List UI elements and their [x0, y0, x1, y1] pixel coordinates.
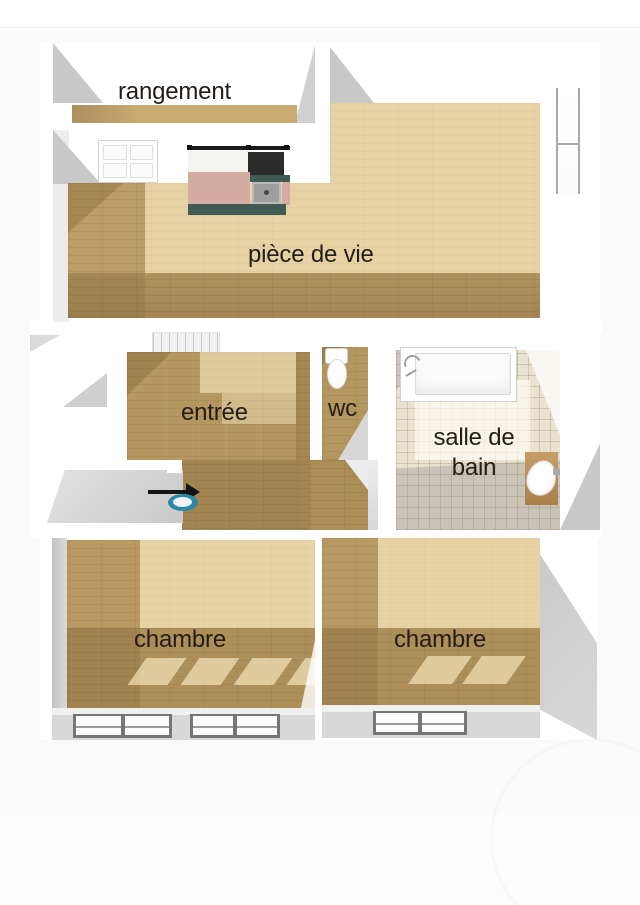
counter-top: [188, 172, 250, 205]
room-label-rangement: rangement: [118, 78, 231, 106]
kitchen-sink-icon: [252, 182, 281, 204]
wall-gap: [315, 43, 330, 131]
bathtub-basin: [415, 353, 511, 395]
door-panel: [130, 163, 154, 178]
floor-shadow: [296, 352, 310, 460]
floor-plan-page: rangement pièce de vie entrée wc salle d…: [0, 0, 640, 905]
worktop: [188, 151, 250, 172]
double-door-icon: [98, 140, 158, 183]
window-pane: [76, 716, 121, 735]
window-pane: [376, 713, 418, 732]
wall-face: [52, 538, 67, 708]
living-room-floor: [330, 103, 540, 318]
wall-shadow: [63, 373, 107, 407]
floor-light-patch: [140, 540, 315, 628]
kitchen-counter-icon: [187, 144, 290, 215]
wall-face: [560, 350, 600, 530]
sink-drain: [264, 190, 269, 195]
wall-shadow: [295, 45, 315, 123]
room-label-entree: entrée: [181, 399, 248, 427]
cabinet-edge: [248, 175, 290, 182]
door-panel: [130, 145, 154, 160]
counter-top-edge: [282, 182, 290, 205]
wall-shadow: [560, 350, 600, 530]
basin-bowl: [173, 497, 192, 507]
rail-knob: [187, 145, 192, 150]
rail-knob: [246, 145, 251, 150]
wall-face: [540, 538, 597, 740]
window-pane: [125, 716, 170, 735]
room-label-salle-de-bain: salle de bain: [420, 423, 528, 483]
room-label-wc: wc: [328, 395, 357, 423]
window-icon: [190, 714, 280, 738]
bathtub-icon: [400, 347, 517, 402]
room-label-chambre-gauche: chambre: [134, 626, 226, 654]
room-piece-de-vie-upper: [330, 43, 600, 322]
bedroom-floor: [322, 538, 540, 705]
door-panel: [103, 163, 127, 178]
window-icon: [556, 88, 580, 194]
window-icon: [373, 711, 467, 735]
rangement-floor: [72, 105, 297, 123]
entry-washbasin-icon: [168, 494, 198, 511]
exterior-wall: [322, 705, 540, 738]
wall-gap: [30, 530, 602, 538]
wall-shadow: [30, 335, 60, 352]
window-pane: [422, 713, 464, 732]
wall-shadow: [540, 538, 597, 740]
counter-rail: [187, 146, 290, 150]
vanity-icon: [525, 452, 558, 505]
rail-knob: [284, 145, 289, 150]
basin-faucet-icon: [553, 468, 560, 475]
floor-light-patch: [378, 538, 540, 628]
floor-shadow: [330, 273, 540, 318]
staircase-icon: [152, 332, 220, 354]
window-pane: [193, 716, 233, 735]
cabinet-front: [188, 204, 286, 215]
window-pane: [237, 716, 277, 735]
hallway-floor: [310, 460, 368, 530]
wall-face: [378, 332, 388, 530]
bedroom-floor: [67, 540, 315, 708]
wall-shadow: [53, 130, 101, 184]
window-icon: [73, 714, 172, 738]
toilet-bowl: [327, 359, 347, 389]
stove-icon: [248, 152, 284, 177]
wall-stub: [167, 460, 182, 473]
wall-highlight: [526, 350, 560, 435]
floor-shadow: [68, 273, 330, 318]
room-label-chambre-droite: chambre: [394, 626, 486, 654]
floor-light-patch: [200, 352, 296, 393]
exterior-wall: [52, 708, 315, 740]
door-panel: [103, 145, 127, 160]
door-swing: [345, 460, 368, 490]
wall-shadow: [127, 352, 172, 395]
wall-shadow: [53, 43, 103, 103]
room-label-piece-de-vie: pièce de vie: [248, 241, 374, 269]
wall-shadow: [330, 47, 374, 103]
